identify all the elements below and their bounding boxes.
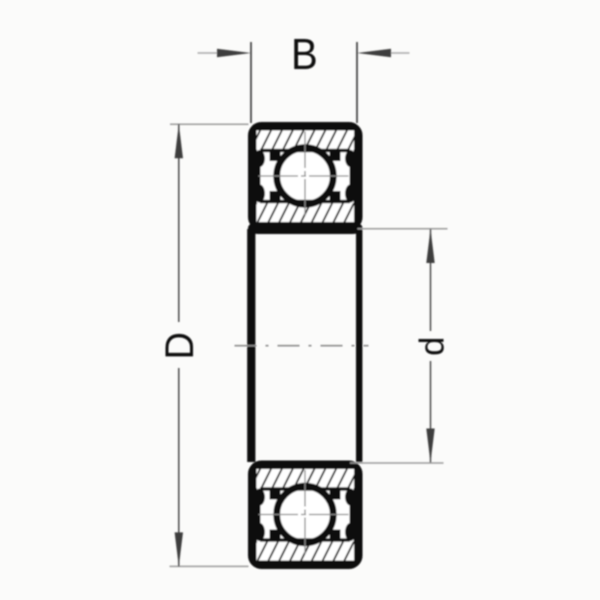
svg-text:D: D (158, 332, 202, 359)
svg-text:B: B (291, 29, 318, 78)
svg-text:d: d (414, 337, 452, 356)
